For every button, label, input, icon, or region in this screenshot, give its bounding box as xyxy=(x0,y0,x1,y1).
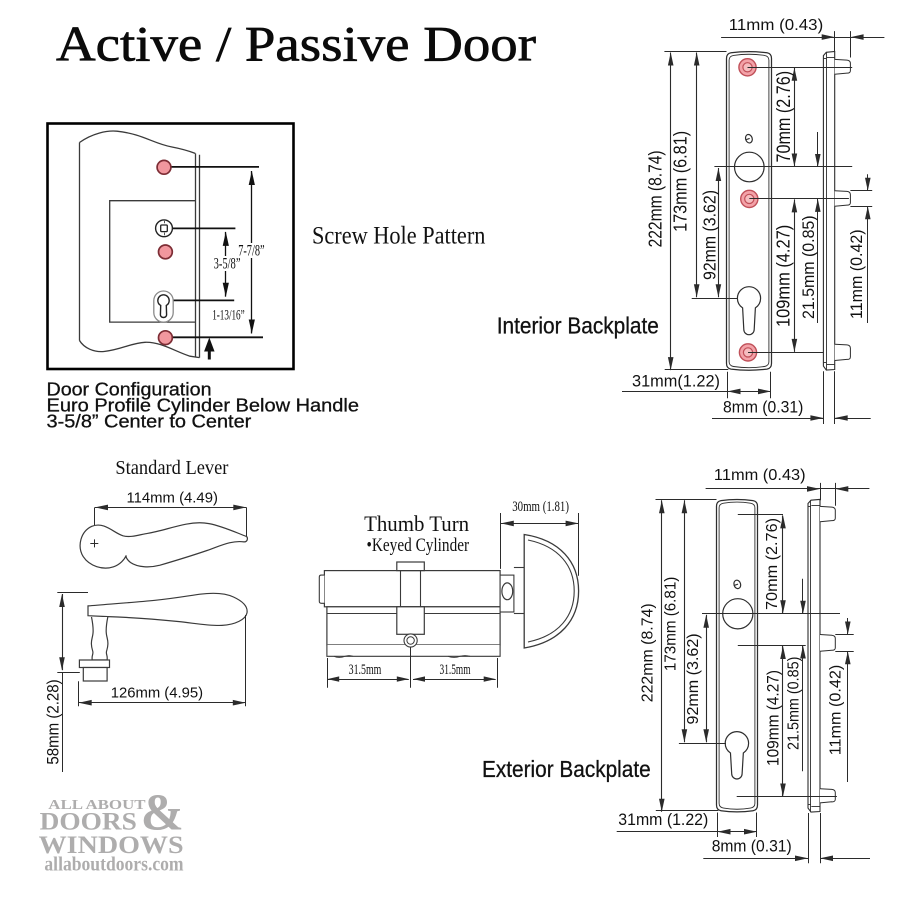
svg-text:Interior Backplate: Interior Backplate xyxy=(497,312,659,338)
svg-text:126mm (4.95): 126mm (4.95) xyxy=(111,684,203,701)
svg-text:173mm (6.81): 173mm (6.81) xyxy=(663,577,680,671)
svg-text:allaboutdoors.com: allaboutdoors.com xyxy=(44,853,183,875)
svg-text:92mm (3.62): 92mm (3.62) xyxy=(685,633,702,724)
svg-text:21.5mm (0.85): 21.5mm (0.85) xyxy=(786,657,803,750)
svg-text:Thumb Turn: Thumb Turn xyxy=(364,511,469,536)
svg-text:70mm (2.76): 70mm (2.76) xyxy=(764,518,781,610)
svg-text:222mm (8.74): 222mm (8.74) xyxy=(640,603,657,702)
svg-text:31mm (1.22): 31mm (1.22) xyxy=(618,811,708,829)
svg-text:70mm (2.76): 70mm (2.76) xyxy=(773,71,795,163)
svg-text:11mm (0.42): 11mm (0.42) xyxy=(827,665,844,756)
svg-text:114mm (4.49): 114mm (4.49) xyxy=(126,490,218,507)
svg-text:92mm (3.62): 92mm (3.62) xyxy=(700,190,720,280)
svg-text:Standard Lever: Standard Lever xyxy=(115,458,228,479)
svg-text:31.5mm: 31.5mm xyxy=(440,662,471,678)
svg-text:109mm (4.27): 109mm (4.27) xyxy=(774,225,794,327)
svg-text:8mm (0.31): 8mm (0.31) xyxy=(712,838,792,856)
svg-text:Active / Passive Door: Active / Passive Door xyxy=(56,16,536,72)
svg-text:222mm (8.74): 222mm (8.74) xyxy=(644,150,665,247)
svg-text:31.5mm: 31.5mm xyxy=(349,662,382,678)
svg-text:8mm (0.31): 8mm (0.31) xyxy=(723,399,803,417)
svg-text:58mm (2.28): 58mm (2.28) xyxy=(44,679,63,764)
svg-text:21.5mm (0.85): 21.5mm (0.85) xyxy=(799,215,818,319)
svg-text:•Keyed Cylinder: •Keyed Cylinder xyxy=(367,535,470,556)
svg-text:3-5/8”: 3-5/8” xyxy=(214,256,241,273)
svg-text:30mm (1.81): 30mm (1.81) xyxy=(512,499,569,515)
svg-text:11mm (0.43): 11mm (0.43) xyxy=(729,17,823,34)
svg-text:109mm (4.27): 109mm (4.27) xyxy=(765,670,783,766)
svg-text:1-13/16”: 1-13/16” xyxy=(212,308,245,324)
svg-text:31mm(1.22): 31mm(1.22) xyxy=(632,373,720,391)
svg-text:11mm (0.43): 11mm (0.43) xyxy=(714,467,806,484)
svg-text:3-5/8” Center to Center: 3-5/8” Center to Center xyxy=(47,411,252,432)
svg-text:173mm (6.81): 173mm (6.81) xyxy=(669,131,690,232)
svg-text:11mm (0.42): 11mm (0.42) xyxy=(847,229,866,319)
svg-text:Exterior Backplate: Exterior Backplate xyxy=(482,756,651,782)
svg-text:Screw Hole Pattern: Screw Hole Pattern xyxy=(312,223,486,250)
